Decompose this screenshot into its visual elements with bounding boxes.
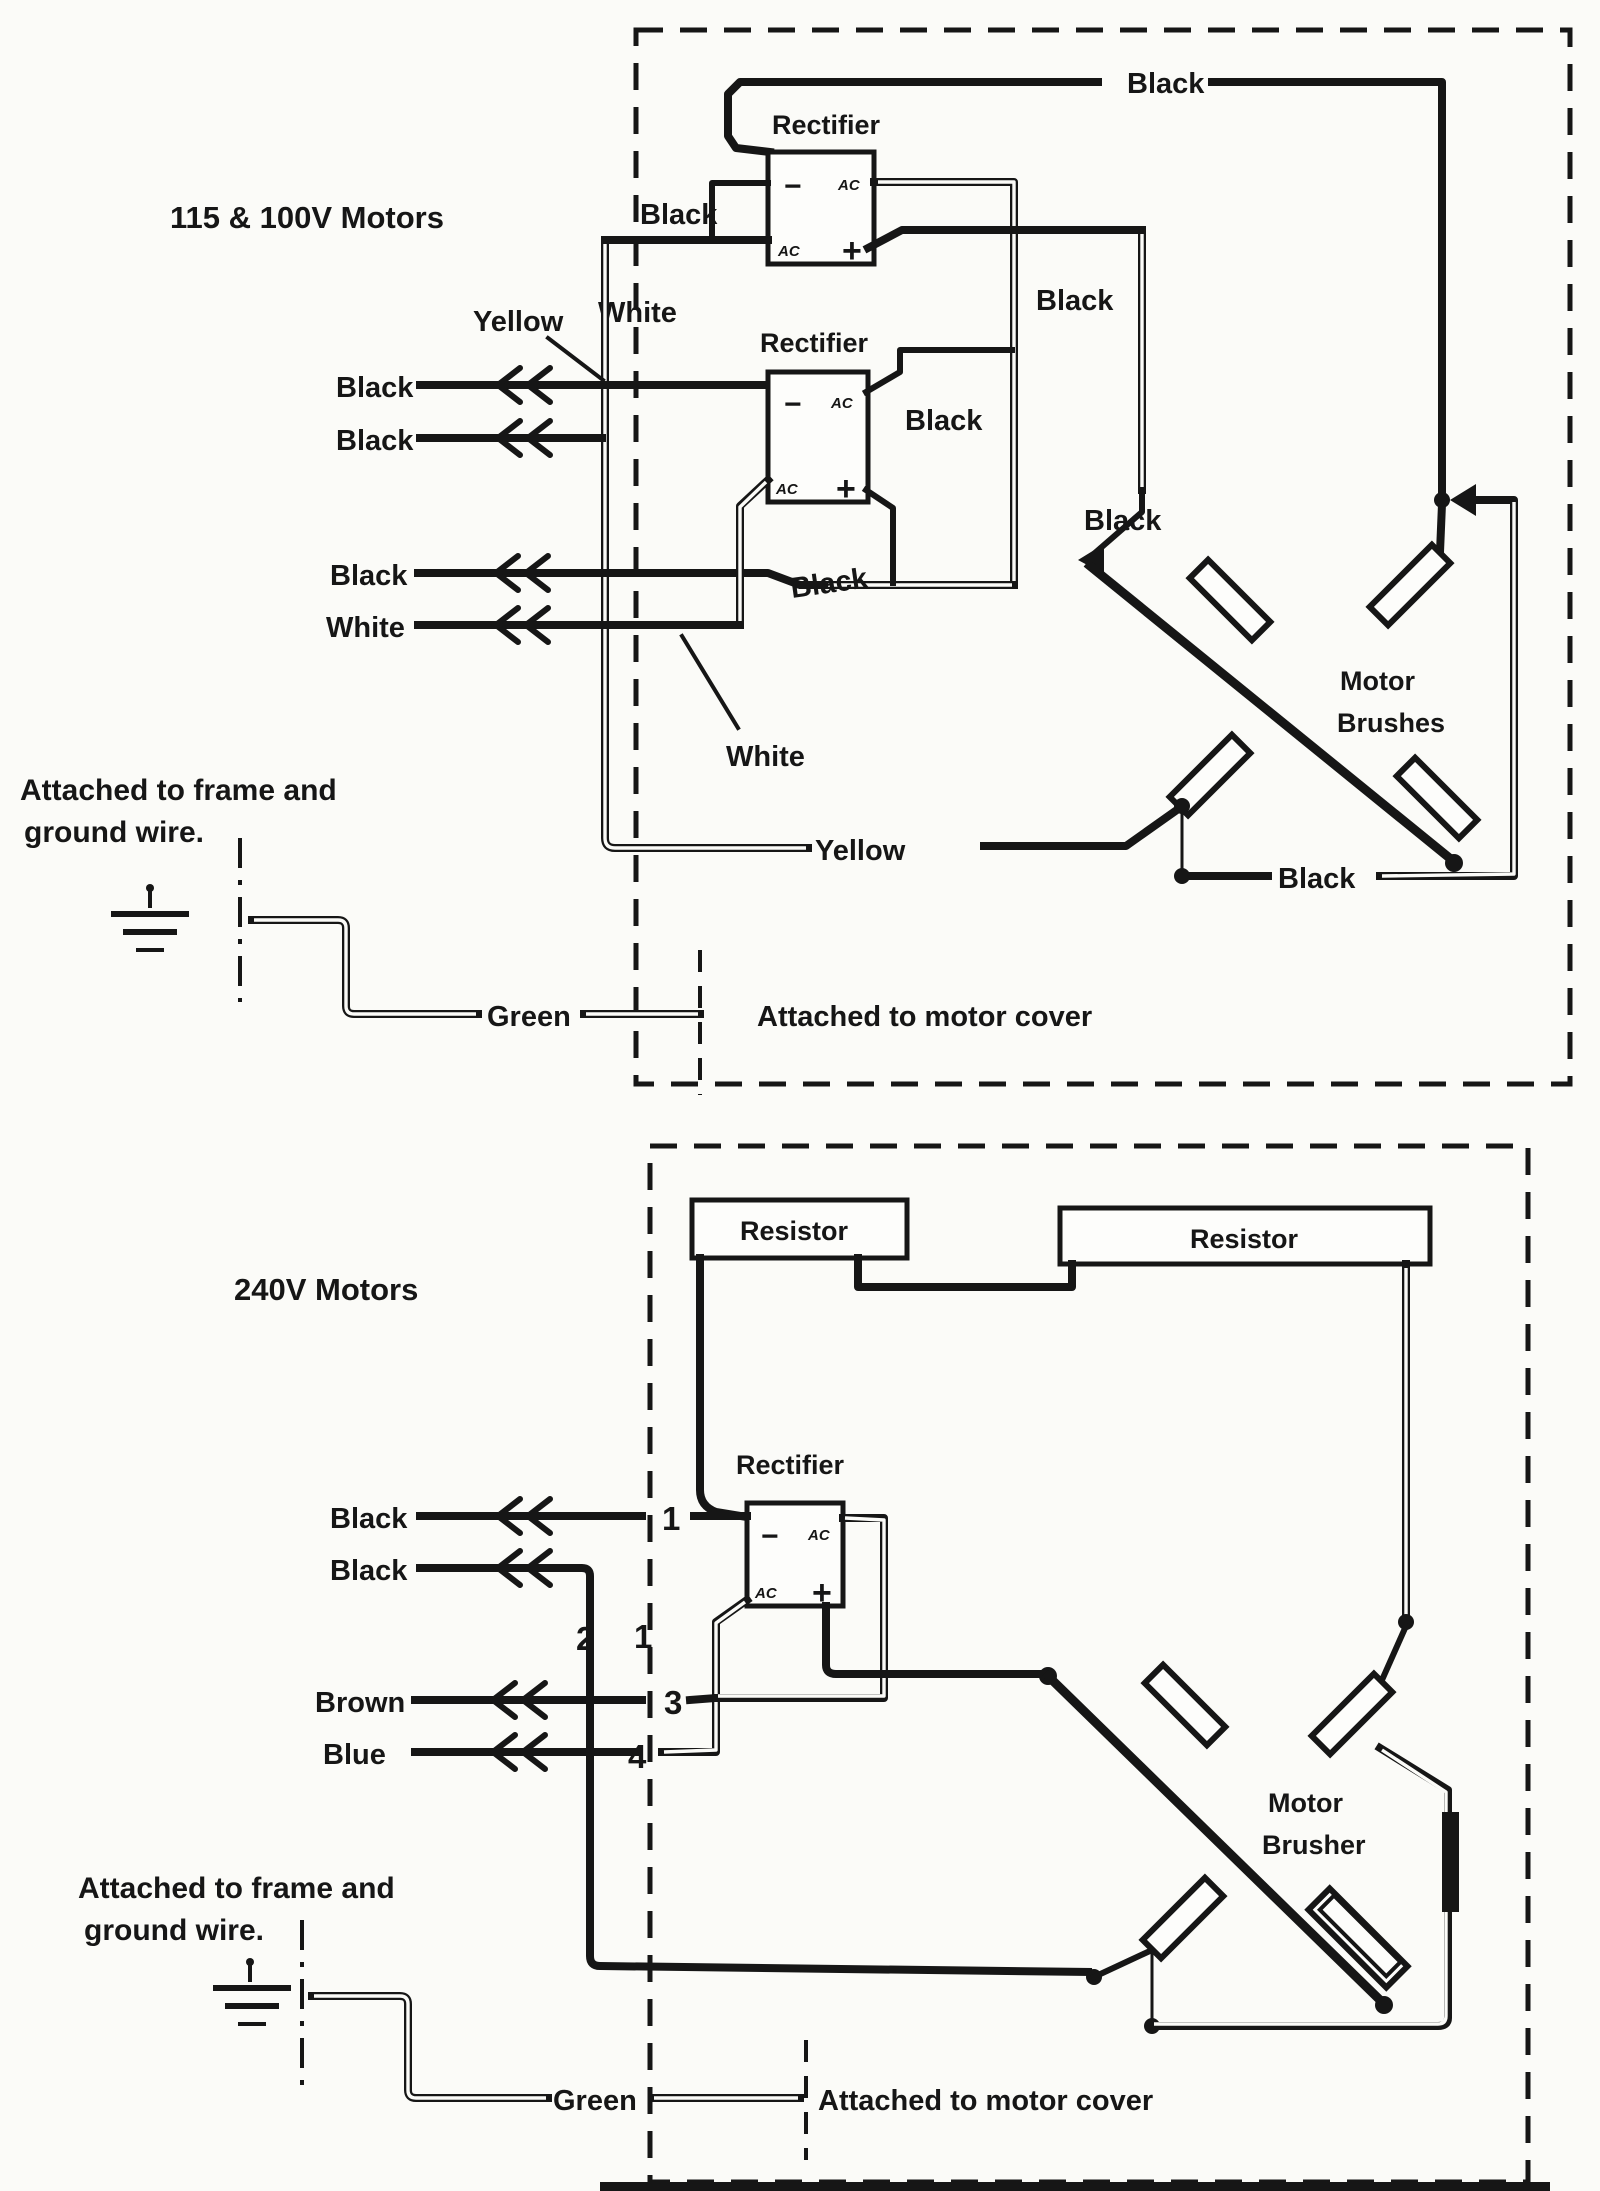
- label-rectifier-3: Rectifier: [736, 1450, 845, 1480]
- wire-yellow-bottom: [984, 812, 1174, 846]
- input-row2: [420, 421, 602, 455]
- wiring-diagram-svg: 115 & 100V Motors Black Rectifier − AC A…: [0, 0, 1600, 2191]
- wire-resistor-right-down: [1382, 1264, 1414, 1680]
- label-cover-bottom: Attached to motor cover: [818, 2085, 1153, 2117]
- r2-ac-top: AC: [830, 395, 854, 412]
- brush-upper-left: [1190, 560, 1271, 641]
- label-black-brush: Black: [1084, 505, 1162, 537]
- label-motor-brusher-1: Motor: [1268, 1788, 1343, 1818]
- label-white-pointer: White: [726, 741, 805, 773]
- label-frame2-top: ground wire.: [24, 816, 204, 849]
- label-frame1-bottom: Attached to frame and: [78, 1872, 395, 1905]
- label-n2: 2: [576, 1620, 594, 1657]
- input-row4: [418, 480, 768, 642]
- input-row2-240: [420, 1551, 1160, 2034]
- r1-ac-bottom: AC: [777, 243, 801, 260]
- rectifier-1: − AC AC +: [768, 152, 874, 270]
- label-n1: 1: [662, 1500, 680, 1537]
- label-row4-white: White: [326, 612, 405, 644]
- label-motor-brushes-2: Brushes: [1337, 708, 1445, 738]
- wire-resistor-link: [858, 1258, 1072, 1287]
- label-resistor-left: Resistor: [740, 1216, 849, 1246]
- rectifier-2: − AC AC +: [768, 372, 868, 508]
- r1-plus: +: [842, 232, 862, 270]
- label-row2-240: Black: [330, 1555, 408, 1587]
- input-row1-240: [420, 1499, 747, 1533]
- wire-r3-plus: [826, 1606, 1057, 1685]
- label-black-bottom: Black: [1278, 863, 1356, 895]
- label-row2-black: Black: [336, 425, 414, 457]
- label-motor-brusher-2: Brusher: [1262, 1830, 1366, 1860]
- label-row1-240: Black: [330, 1503, 408, 1535]
- page-bottom-bar: [600, 2182, 1550, 2191]
- r1-ac-top: AC: [837, 177, 861, 194]
- r2-ac-bottom: AC: [775, 481, 799, 498]
- commutator-bar: [1442, 1812, 1459, 1912]
- label-rectifier-1: Rectifier: [772, 110, 881, 140]
- section-115-100v: 115 & 100V Motors Black Rectifier − AC A…: [20, 30, 1570, 1095]
- wire-rectifier2-right: [866, 350, 1012, 583]
- r3-ac-bottom: AC: [754, 1585, 778, 1602]
- label-green-bottom: Green: [553, 2085, 637, 2117]
- wiring-diagram-page: 115 & 100V Motors Black Rectifier − AC A…: [0, 0, 1600, 2191]
- brush-upper-right: [1370, 545, 1451, 626]
- label-rectifier-2: Rectifier: [760, 328, 869, 358]
- label-motor-brushes-1: Motor: [1340, 666, 1415, 696]
- label-frame1-top: Attached to frame and: [20, 774, 337, 807]
- yellow-pointer-line: [548, 338, 603, 380]
- brush-upper-right-240: [1312, 1674, 1393, 1755]
- label-row3-black: Black: [330, 560, 408, 592]
- rectifier-3: − AC AC +: [747, 1503, 843, 1612]
- label-green-top: Green: [487, 1001, 571, 1033]
- r3-ac-top: AC: [807, 1527, 831, 1544]
- label-n4: 4: [628, 1738, 647, 1775]
- label-black-r1-left: Black: [640, 199, 718, 231]
- label-black-r2-right: Black: [905, 405, 983, 437]
- label-row3-brown: Brown: [315, 1687, 405, 1719]
- label-resistor-right: Resistor: [1190, 1224, 1299, 1254]
- ground-symbol-top: [114, 884, 186, 950]
- label-yellow-top: Yellow: [473, 306, 564, 338]
- label-cover-top: Attached to motor cover: [757, 1001, 1092, 1033]
- section-240v: 240V Motors Resistor Resistor Rectifier …: [78, 1146, 1550, 2191]
- brush-upper-left-240: [1145, 1665, 1226, 1746]
- label-row1-black: Black: [336, 372, 414, 404]
- label-yellow-bottom: Yellow: [815, 835, 906, 867]
- r3-minus: −: [761, 1520, 779, 1553]
- ground-symbol-bottom: [216, 1958, 288, 2024]
- label-n1b: 1: [634, 1618, 652, 1655]
- input-row3: [418, 556, 824, 590]
- label-n3: 3: [664, 1684, 682, 1721]
- section-title-115: 115 & 100V Motors: [170, 200, 444, 235]
- wire-green-top: [252, 920, 700, 1014]
- r1-minus: −: [784, 170, 802, 203]
- label-row4-blue: Blue: [323, 1739, 386, 1771]
- label-frame2-bottom: ground wire.: [84, 1914, 264, 1947]
- label-white-left: White: [598, 297, 677, 329]
- r2-plus: +: [836, 470, 856, 508]
- label-black-top: Black: [1127, 68, 1205, 100]
- label-black-mid: Black: [789, 562, 871, 605]
- wire-green-bottom: [312, 1996, 800, 2098]
- white-pointer-line: [682, 636, 738, 728]
- r2-minus: −: [784, 388, 802, 421]
- brush-lower-left-240: [1143, 1878, 1224, 1959]
- label-black-r1-right: Black: [1036, 285, 1114, 317]
- section-title-240: 240V Motors: [234, 1272, 418, 1307]
